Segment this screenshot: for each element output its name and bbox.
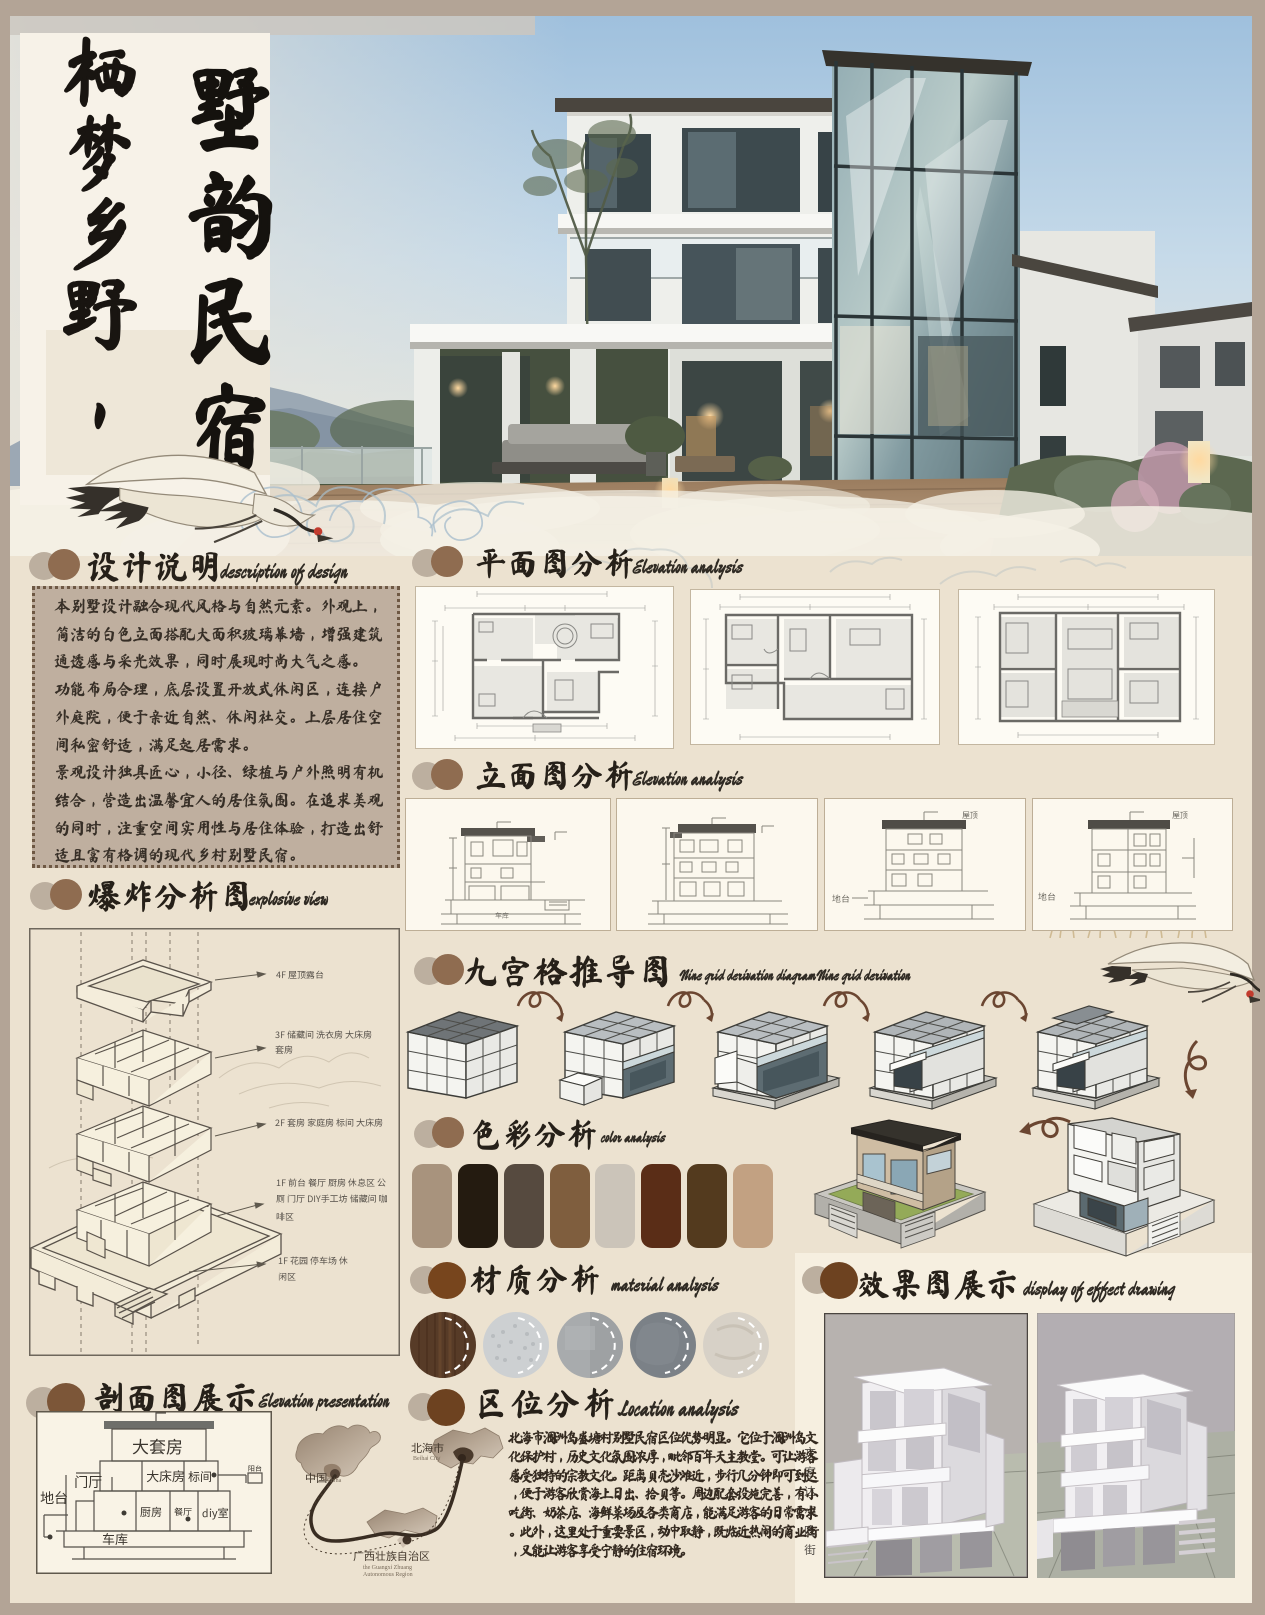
- svg-text:啡区: 啡区: [276, 1210, 294, 1223]
- svg-text:车库: 车库: [495, 911, 509, 921]
- svg-text:1F 前台 餐厅 厨房 休息区 公: 1F 前台 餐厅 厨房 休息区 公: [276, 1176, 386, 1189]
- svg-text:diy室: diy室: [202, 1505, 229, 1521]
- svg-text:厕 门厅 DIY手工坊 储藏间 咖: 厕 门厅 DIY手工坊 储藏间 咖: [276, 1192, 388, 1205]
- svg-text:地台: 地台: [1038, 890, 1056, 903]
- svg-text:大床房: 大床房: [146, 1466, 185, 1485]
- svg-text:阳台: 阳台: [248, 1464, 262, 1474]
- svg-text:屋顶: 屋顶: [1172, 810, 1188, 821]
- svg-text:2F 套房 家庭房 标间 大床房: 2F 套房 家庭房 标间 大床房: [275, 1116, 383, 1129]
- svg-text:Beihai City: Beihai City: [413, 1453, 441, 1462]
- svg-text:大套房: 大套房: [132, 1433, 183, 1458]
- svg-text:1F 花园 停车场 休: 1F 花园 停车场 休: [278, 1254, 348, 1267]
- svg-text:地台: 地台: [832, 892, 850, 905]
- svg-text:Autonomous Region: Autonomous Region: [363, 1569, 413, 1578]
- svg-text:车库: 车库: [102, 1529, 128, 1548]
- svg-text:屋顶: 屋顶: [962, 810, 978, 821]
- svg-text:4F 屋顶露台: 4F 屋顶露台: [276, 968, 324, 981]
- svg-text:闲区: 闲区: [278, 1270, 296, 1283]
- svg-text:3F 储藏间 洗衣房 大床房: 3F 储藏间 洗衣房 大床房: [275, 1028, 372, 1041]
- svg-text:套房: 套房: [275, 1043, 293, 1056]
- svg-text:厨房: 厨房: [140, 1504, 162, 1520]
- svg-text:标间: 标间: [187, 1468, 212, 1485]
- svg-text:餐厅: 餐厅: [174, 1505, 192, 1518]
